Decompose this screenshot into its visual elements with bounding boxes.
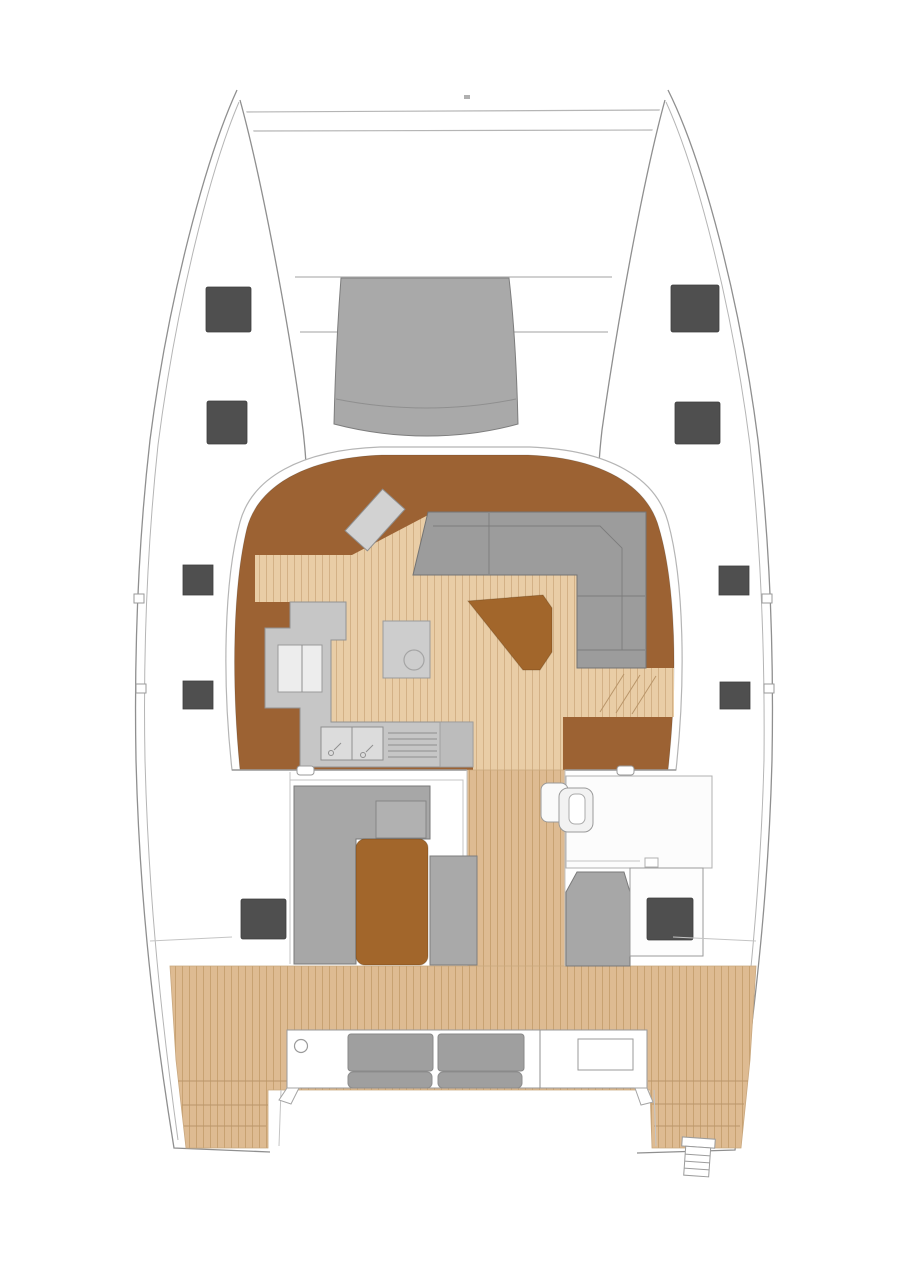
port-mid-hatch-1 [183, 565, 213, 595]
helm-seat [566, 872, 630, 966]
helm-wheel [569, 794, 585, 824]
door-stop-starboard [617, 766, 634, 775]
bench-table-top [578, 1039, 633, 1070]
foredeck-pod-shape [334, 278, 518, 436]
helm-step-tab [645, 858, 658, 867]
door-stop-port [297, 766, 314, 775]
galley-fridge-cabinet [278, 645, 322, 692]
starboard-bow-hatch-2 [675, 402, 720, 444]
port-berth [356, 839, 428, 965]
starboard-aft-hatch [647, 898, 693, 940]
bench-cushion-2 [438, 1034, 524, 1071]
deck-plan-canvas [0, 0, 905, 1280]
port-lounge-cushion [376, 801, 426, 838]
swim-ladder [680, 1137, 716, 1177]
bench-cushion-1 [348, 1034, 433, 1071]
port-companionway-landing [440, 722, 473, 767]
starboard-mid-hatch-2 [720, 682, 750, 709]
island-unit [383, 621, 430, 678]
port-side-seat [430, 856, 477, 965]
crossbeam-line-2 [244, 130, 659, 131]
bow-crossbeams [240, 95, 663, 131]
port-gate-bracket-1 [134, 594, 144, 603]
starboard-gate-bracket-1 [762, 594, 772, 603]
island-top [383, 621, 430, 678]
foredeck-pod [334, 278, 518, 436]
port-bow-hatch-1 [206, 287, 251, 332]
crossbeam-line-1 [240, 110, 663, 112]
anchor-fitting-dot [464, 95, 470, 99]
bench-back-cushion-1 [348, 1072, 432, 1088]
galley-sink [321, 727, 383, 760]
starboard-mid-hatch-1 [719, 566, 749, 595]
starboard-bow-hatch-1 [671, 285, 719, 332]
cockpit-bench [279, 1030, 653, 1105]
catamaran-floorplan [0, 0, 905, 1280]
starboard-gate-bracket-2 [764, 684, 774, 693]
port-aft-hatch [241, 899, 286, 939]
port-mid-hatch-2 [183, 681, 213, 709]
port-bow-hatch-2 [207, 401, 247, 444]
bench-back-cushion-2 [438, 1072, 522, 1088]
port-gate-bracket-2 [136, 684, 146, 693]
port-aft-lounge [290, 772, 477, 965]
